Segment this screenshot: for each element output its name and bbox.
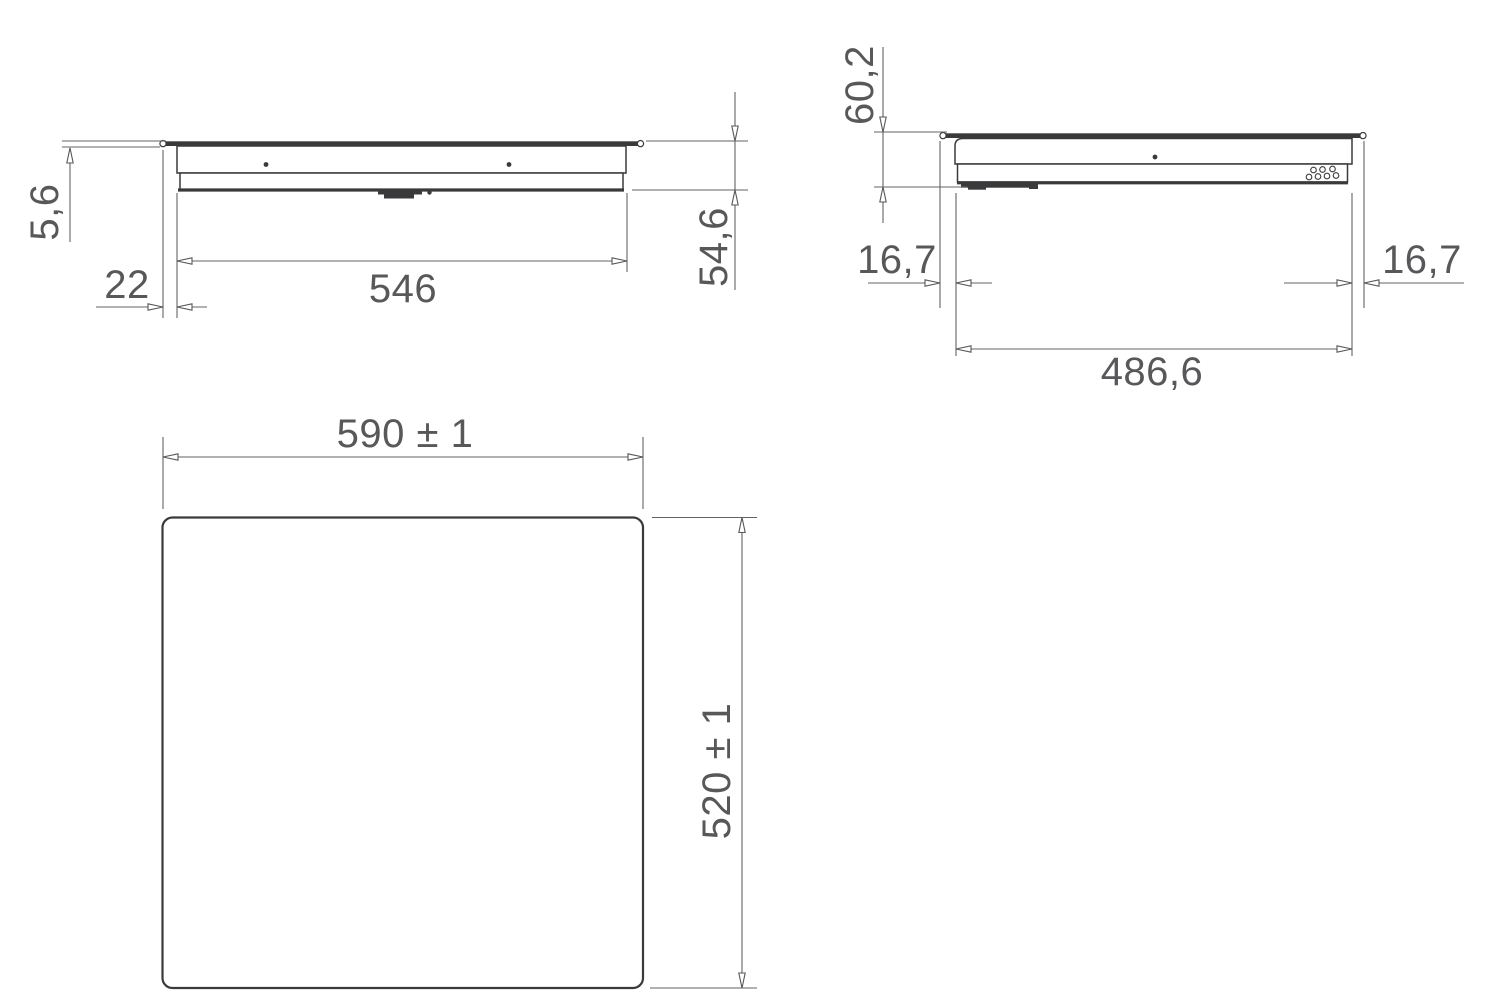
dim-label-body-depth: 486,6 [1101,350,1204,394]
arrowhead [148,304,163,310]
dim-label-glass-thickness: 5,6 [23,183,67,240]
arrowhead [732,190,738,205]
dim-label-overhang-right: 16,7 [1382,238,1462,282]
glass-edge-tip [940,133,946,139]
arrowhead [628,454,643,460]
arrowhead [956,346,971,352]
vent-hole [1333,173,1339,179]
dim-label-overhang-left: 16,7 [857,238,937,282]
vent-hole [1330,166,1336,172]
glass-panel [946,133,1361,138]
screw-dot [1153,155,1158,160]
arrowhead [880,187,886,202]
vent-hole [1315,174,1321,180]
arrowhead [739,973,745,988]
vent-hole [1311,167,1317,173]
dim-body-depth: 486,6 [956,346,1352,394]
mounting-bracket [961,184,1038,190]
arrowhead [163,454,178,460]
glass-edge-tip [637,141,643,147]
dim-label-glass-overhang: 22 [104,263,150,307]
arrowhead [612,258,627,264]
hob-dimension-drawing: 5,6 22 546 54,6 [0,0,1500,1000]
dim-label-top-depth: 520 ± 1 [695,703,739,840]
dim-build-in-height: 54,6 [632,92,748,290]
arrowhead [1364,280,1379,286]
side-section-view: 60,2 16,7 16,7 486,6 [838,45,1464,394]
hob-body-upper [955,139,1352,165]
arrowhead [1337,346,1352,352]
dim-label-body-width: 546 [369,267,437,311]
vent-hole [1324,173,1330,179]
front-section-view: 5,6 22 546 54,6 [23,92,748,318]
dim-top-width: 590 ± 1 [163,412,643,509]
glass-edge-tip [1360,133,1366,139]
arrowhead [177,258,192,264]
glass-panel [164,141,639,146]
dim-label-build-in-height: 54,6 [692,207,736,287]
screw-dot [264,162,269,167]
arrowhead [739,518,745,533]
dim-top-depth: 520 ± 1 [650,518,757,989]
arrowhead [67,148,73,163]
hob-body-upper [177,146,626,173]
hob-body-lower [180,173,623,190]
arrowhead [956,280,971,286]
screw-dot [507,162,512,167]
dim-label-top-width: 590 ± 1 [337,412,474,456]
arrowhead [177,304,192,310]
dim-body-width: 546 [177,193,627,311]
arrowhead [732,126,738,141]
glass-panel-outline [163,518,644,989]
hob-body-lower [958,164,1348,182]
vent-hole [1306,174,1312,180]
arrowhead [1337,280,1352,286]
top-view: 590 ± 1 520 ± 1 [163,412,758,988]
vent-hole [1320,167,1326,173]
dim-glass-thickness: 5,6 [23,141,166,242]
dim-label-total-height: 60,2 [838,45,882,125]
